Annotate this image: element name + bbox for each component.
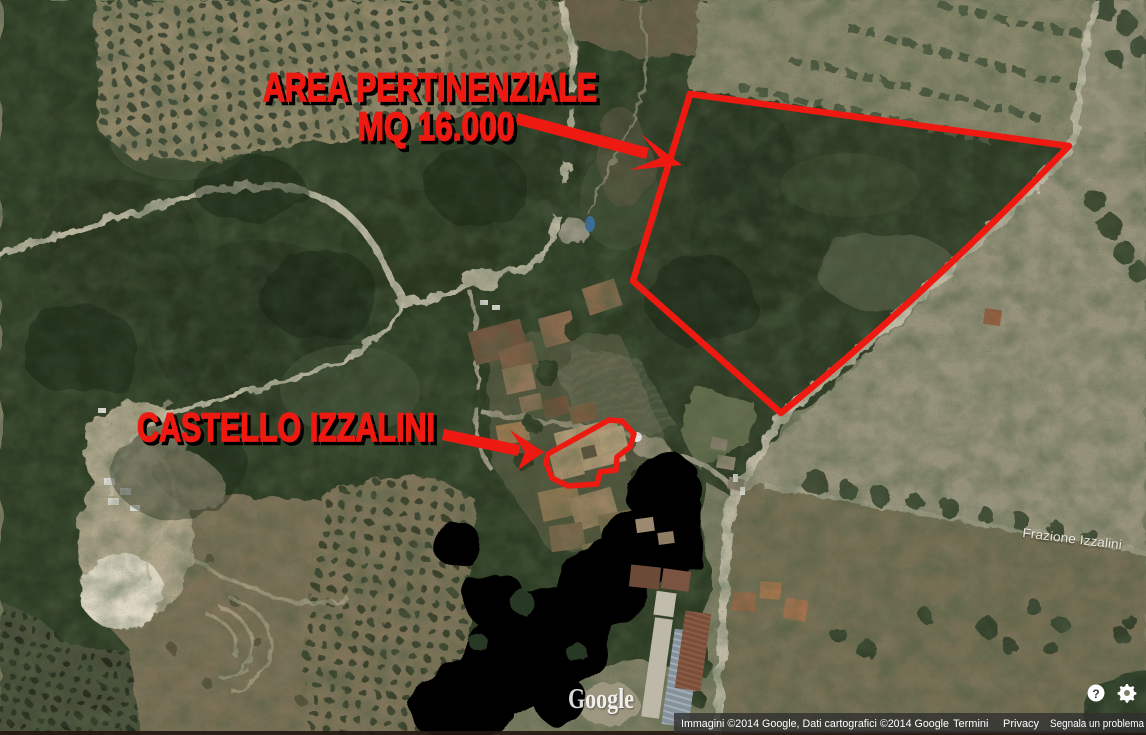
svg-text:Segnala un problema: Segnala un problema [1050,718,1145,730]
svg-text:Immagini ©2014 Google, Dati ca: Immagini ©2014 Google, Dati cartografici… [681,718,949,730]
svg-text:MQ 16.000: MQ 16.000 [358,105,515,149]
svg-text:?: ? [1092,687,1099,701]
svg-text:Termini: Termini [953,718,988,730]
svg-text:Google: Google [568,684,634,715]
svg-text:Privacy: Privacy [1003,718,1040,730]
svg-text:CASTELLO IZZALINI: CASTELLO IZZALINI [137,406,435,450]
svg-text:AREA PERTINENZIALE: AREA PERTINENZIALE [263,66,597,110]
